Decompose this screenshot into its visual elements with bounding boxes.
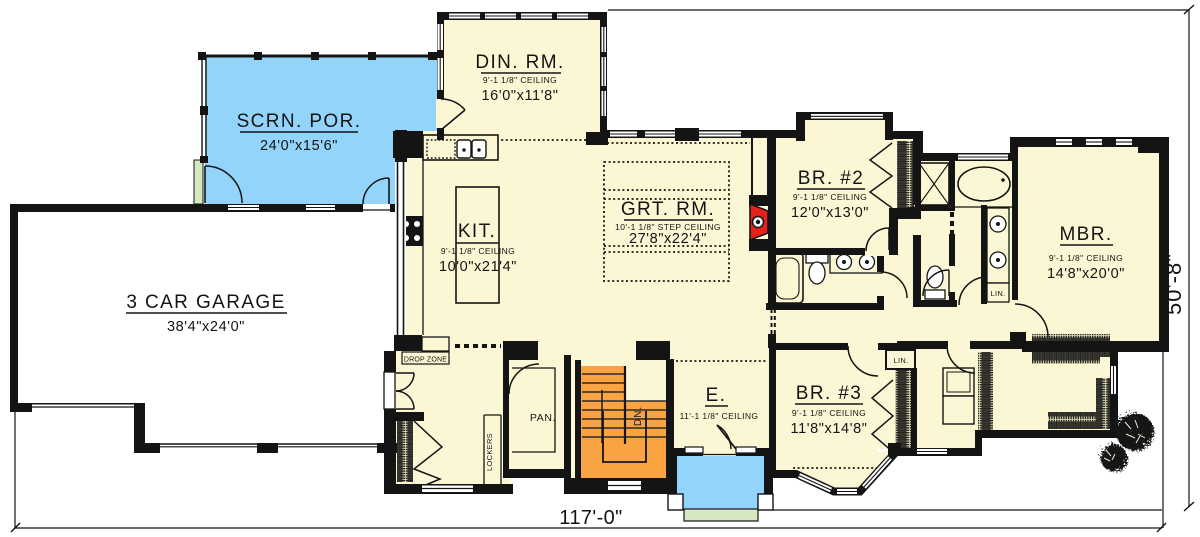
svg-text:BR. #2: BR. #2 (798, 168, 865, 189)
svg-text:BR. #3: BR. #3 (796, 383, 863, 404)
svg-text:3 CAR GARAGE: 3 CAR GARAGE (126, 292, 285, 313)
svg-text:50'-8": 50'-8" (1161, 253, 1186, 315)
svg-text:9'-1 1/8" CEILING: 9'-1 1/8" CEILING (441, 246, 515, 256)
svg-text:16'0"x11'8": 16'0"x11'8" (482, 88, 559, 104)
svg-text:DN.: DN. (633, 406, 644, 426)
svg-text:9'-1 1/8" CEILING: 9'-1 1/8" CEILING (1049, 253, 1123, 263)
svg-text:9'-1 1/8" CEILING: 9'-1 1/8" CEILING (793, 192, 867, 202)
svg-text:LIN.: LIN. (894, 356, 909, 365)
svg-text:PAN.: PAN. (530, 412, 556, 424)
svg-text:DROP ZONE: DROP ZONE (404, 357, 447, 364)
svg-text:9'-1 1/8" CEILING: 9'-1 1/8" CEILING (483, 75, 557, 85)
svg-text:GRT. RM.: GRT. RM. (621, 199, 715, 220)
svg-text:24'0"x15'6": 24'0"x15'6" (260, 138, 338, 154)
svg-text:DIN. RM.: DIN. RM. (475, 52, 564, 73)
svg-text:E.: E. (706, 385, 727, 406)
svg-text:27'8"x22'4": 27'8"x22'4" (629, 231, 707, 247)
svg-text:38'4"x24'0": 38'4"x24'0" (167, 319, 245, 335)
svg-text:KIT.: KIT. (458, 221, 496, 242)
svg-text:14'8"x20'0": 14'8"x20'0" (1047, 266, 1125, 282)
svg-text:117'-0": 117'-0" (559, 507, 622, 529)
svg-text:9'-1 1/8" CEILING: 9'-1 1/8" CEILING (792, 408, 866, 418)
svg-text:12'0"x13'0": 12'0"x13'0" (791, 205, 869, 221)
svg-text:LOCKERS: LOCKERS (485, 433, 494, 471)
svg-text:11'8"x14'8": 11'8"x14'8" (791, 421, 868, 437)
svg-text:11'-1 1/8" CEILING: 11'-1 1/8" CEILING (680, 411, 759, 421)
svg-text:MBR.: MBR. (1059, 224, 1112, 245)
svg-text:SCRN. POR.: SCRN. POR. (237, 111, 362, 132)
svg-text:10'0"x21'4": 10'0"x21'4" (439, 259, 517, 275)
svg-text:LIN.: LIN. (991, 289, 1006, 298)
